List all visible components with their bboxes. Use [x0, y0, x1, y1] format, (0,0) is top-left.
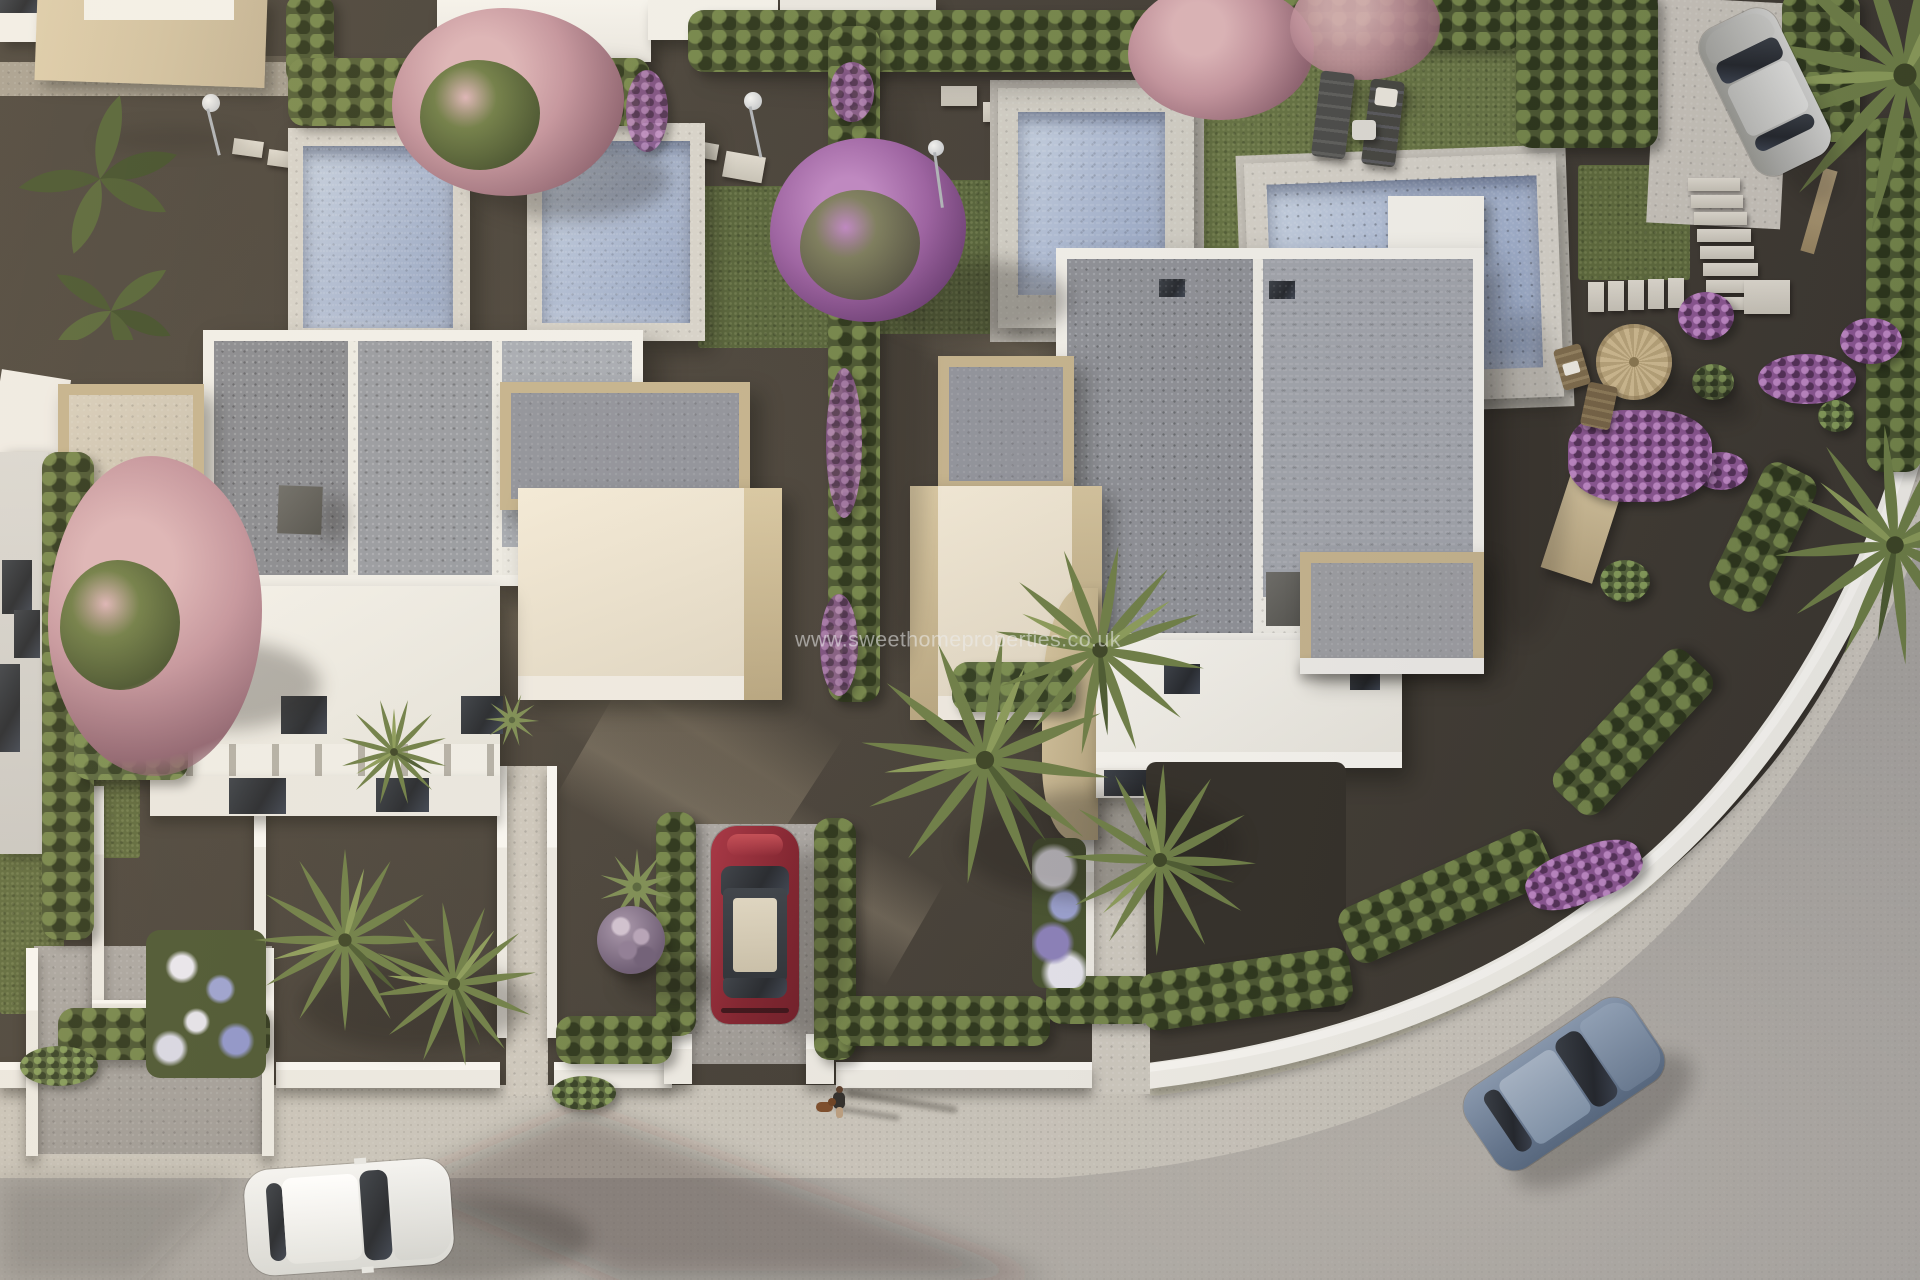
left-villa-chimney [277, 485, 323, 535]
car-rear-trim [721, 1008, 789, 1013]
roof-vent [1269, 281, 1295, 299]
purple-shrub [1678, 292, 1734, 340]
watermark: www.sweethomeproperties.co.uk [795, 628, 1121, 653]
right-villa-right-terrace [1300, 552, 1484, 670]
chimney-shadow [318, 494, 348, 542]
purple-shrub [1840, 318, 1902, 364]
garden-stair-step [1703, 263, 1758, 276]
vine-flowers [626, 70, 668, 152]
neighbor-parapet [84, 0, 234, 20]
parasol-center [1629, 357, 1639, 367]
vine-flowers [826, 368, 862, 518]
path-side-wall [547, 766, 557, 1038]
stair-landing [1744, 280, 1790, 314]
towel [1562, 360, 1581, 376]
person-head [836, 1086, 843, 1093]
stepping-stone [1588, 282, 1604, 312]
car-hood-highlight [727, 834, 783, 856]
vine-flowers [830, 62, 874, 122]
shower-head [202, 94, 220, 112]
car-interior [733, 898, 777, 972]
green-shrub [20, 1046, 98, 1086]
garden-stair-step [1700, 246, 1754, 259]
left-villa-roof-divider [348, 341, 358, 575]
white-car [243, 1157, 456, 1277]
towel [1374, 87, 1398, 108]
window [229, 778, 286, 814]
terrace-white-edge [518, 676, 744, 700]
roof-vent [1159, 279, 1185, 297]
right-villa-side-terrace-upper [938, 356, 1074, 492]
hedge-on-wall [836, 996, 1050, 1046]
shower-head [744, 92, 762, 110]
terrace-stone-band [744, 488, 782, 700]
neighbor-window [0, 0, 38, 13]
car-mirror [354, 1158, 366, 1165]
car-glass-roof [723, 888, 787, 982]
hedge-row [688, 10, 1192, 72]
person-legs [836, 1107, 843, 1118]
palm-tree [1060, 760, 1260, 960]
hedge-on-wall [556, 1016, 672, 1064]
palm-tree [338, 696, 450, 808]
red-car [711, 826, 799, 1024]
car-hood [389, 1163, 453, 1261]
car-rear-window [723, 978, 787, 998]
green-shrub [552, 1076, 616, 1110]
side-table [1352, 120, 1376, 140]
stepping-stone [1628, 280, 1644, 310]
agave-plant [480, 688, 544, 752]
stepping-stone [1648, 279, 1664, 309]
palm-tree [368, 898, 540, 1070]
pink-tree-foliage [60, 560, 180, 690]
right-villa-roof-panel [1263, 259, 1473, 597]
right-villa-roofbox [1388, 196, 1484, 254]
garden-stair-step [1691, 195, 1743, 208]
left-building-window [2, 560, 32, 614]
garden-stair-step [1688, 178, 1740, 191]
left-building-window [14, 610, 40, 658]
purple-tree-foliage [800, 190, 920, 300]
terrace-white-edge [1300, 658, 1484, 674]
hedge-corner [1516, 0, 1658, 148]
banana-plant [0, 40, 210, 340]
left-building-door [0, 664, 20, 752]
left-villa-front-terrace [518, 488, 782, 700]
palm-tree [1770, 420, 1920, 670]
sphere-bush [597, 906, 665, 974]
left-building [0, 452, 48, 854]
right-villa-roof-divider [1253, 259, 1263, 633]
street-wall [836, 1062, 1092, 1088]
pink-tree-foliage [420, 60, 540, 170]
car-mirror [362, 1266, 374, 1273]
dog-head [828, 1098, 836, 1106]
stepping-stone [1608, 281, 1624, 311]
aerial-villa-render: www.sweethomeproperties.co.uk [0, 0, 1920, 1280]
green-shrub [1600, 560, 1650, 602]
car-roof [281, 1173, 363, 1264]
purple-shrub [1758, 354, 1856, 404]
flower-bed-white-blue [146, 930, 266, 1078]
left-villa-roof-panel [358, 341, 492, 575]
